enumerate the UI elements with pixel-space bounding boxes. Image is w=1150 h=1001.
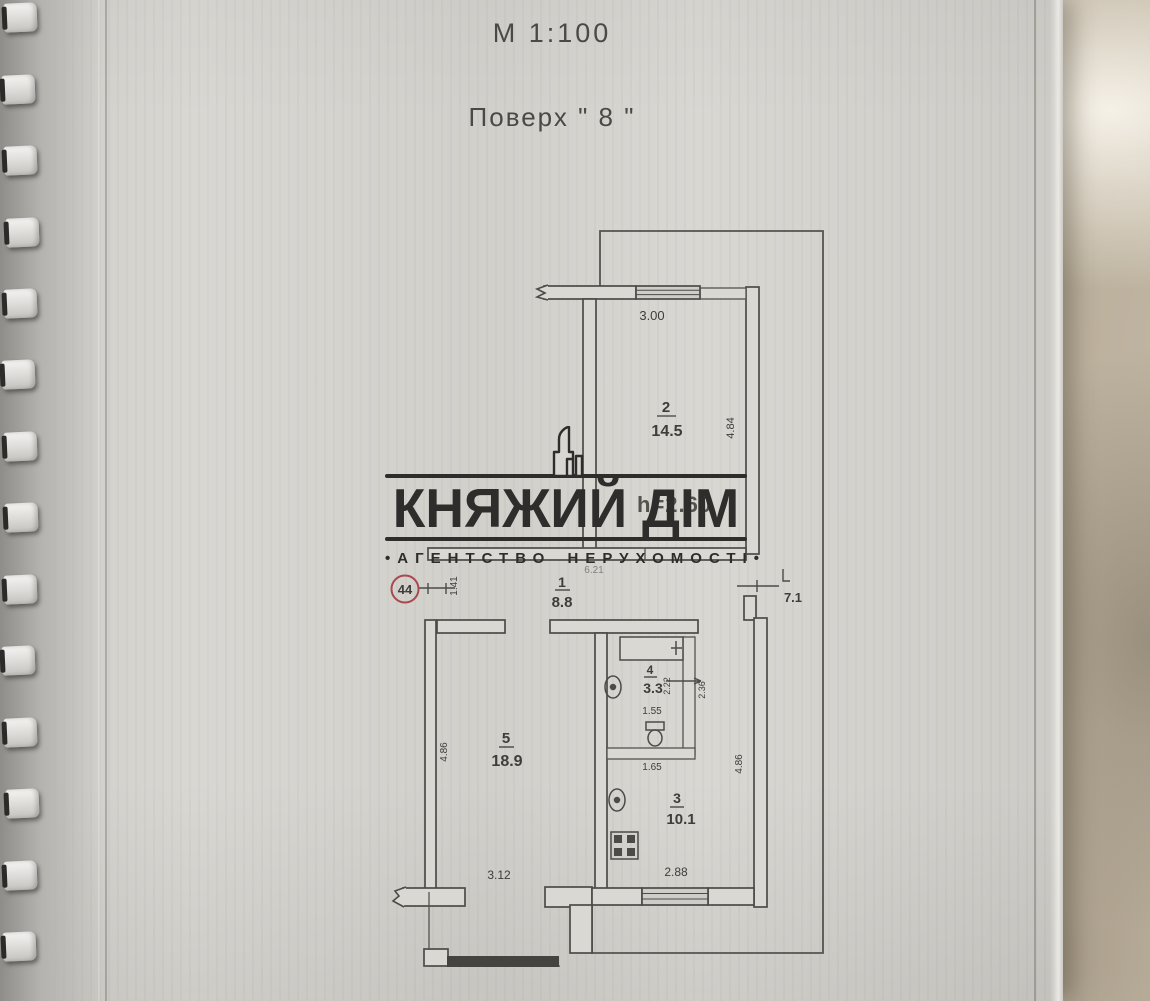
dim-kitchen-depth: 4.86 (734, 754, 745, 774)
page-right-edge (1050, 0, 1063, 1001)
room3-number: 3 (673, 790, 681, 806)
binding-comb-tooth (2, 931, 36, 961)
binding-comb-tooth (3, 431, 37, 461)
dim-niche-depth: 2.36 (697, 681, 707, 699)
kitchen-sink-drain-icon (615, 798, 620, 803)
toilet-tank-icon (646, 722, 664, 730)
wall-segment (403, 888, 465, 906)
room5-number: 5 (502, 730, 510, 747)
wall-segment (424, 949, 448, 966)
binding-comb-tooth (3, 574, 37, 604)
wall-segment (425, 620, 436, 892)
zigzag-break (393, 887, 406, 907)
watermark-title: КНЯЖИЙ ДІМ (390, 481, 741, 536)
dim-bath-len: 1.55 (642, 706, 662, 717)
dim-line-balcony (737, 580, 779, 592)
wall-segment (544, 286, 636, 299)
wall-segment (437, 620, 505, 633)
wall-segment (754, 618, 767, 907)
dim-bath-width: 2.22 (662, 677, 672, 695)
door-swing-mark (783, 569, 790, 581)
dim-room5-width: 3.12 (487, 868, 511, 882)
wall-segment (592, 888, 642, 905)
building-logo-icon (544, 426, 588, 476)
binding-comb-tooth (5, 788, 39, 818)
binding-comb-tooth (1, 645, 35, 675)
binding-comb-tooth (1, 359, 35, 389)
document-page: М 1:100 Поверх " 8 " (0, 0, 1063, 1001)
dim-kitchen-width: 2.88 (664, 865, 688, 879)
dim-room5-depth: 4.86 (439, 742, 450, 762)
window (642, 888, 708, 905)
room3-area: 10.1 (666, 811, 695, 828)
wall-segment (550, 620, 698, 633)
binding-comb-tooth (3, 145, 37, 175)
binding-comb-tooth (4, 502, 38, 532)
balcony-window-sill (447, 956, 559, 967)
room5-area: 18.9 (491, 753, 522, 770)
watermark-subtitle: •АГЕНТСТВО НЕРУХОМОСТІ• (385, 550, 747, 567)
wall-segment (570, 905, 592, 953)
wall-segment (708, 888, 754, 905)
agency-watermark: КНЯЖИЙ ДІМ •АГЕНТСТВО НЕРУХОМОСТІ• (385, 426, 747, 567)
binding-comb-tooth (3, 860, 37, 890)
wall-segment (746, 287, 759, 554)
binding-comb-tooth (3, 288, 37, 318)
wall-segment (744, 596, 756, 620)
balcony-area: 7.1 (784, 590, 802, 605)
wall-segment (545, 887, 592, 907)
room4-number: 4 (647, 663, 654, 677)
binding-comb-tooth (1, 74, 35, 104)
wall-segment (683, 637, 695, 755)
wall-segment (700, 288, 746, 299)
apartment-number-label: 44 (398, 582, 413, 597)
photo-scene: М 1:100 Поверх " 8 " (0, 0, 1150, 1001)
toilet-bowl-icon (648, 730, 662, 746)
watermark-bullet-left: • (385, 550, 397, 567)
dim-room2-width: 3.00 (639, 308, 664, 323)
walls (403, 286, 767, 966)
room2-number: 2 (662, 399, 670, 416)
wall-segment (595, 633, 607, 890)
watermark-bullet-right: • (754, 550, 766, 567)
window (636, 286, 700, 299)
binding-comb-tooth (3, 717, 37, 747)
stove-burners-icon (614, 835, 635, 856)
dim-entry-width: 1.41 (449, 576, 460, 596)
watermark-subtitle-text: АГЕНТСТВО НЕРУХОМОСТІ (397, 550, 753, 567)
binding-comb-tooth (5, 217, 39, 247)
wall-segment (607, 748, 695, 759)
room1-number: 1 (558, 574, 566, 590)
room4-area: 3.3 (643, 680, 663, 696)
zigzag-break (537, 285, 548, 300)
page-crease-line (105, 0, 107, 1001)
underlying-page-edge (1034, 0, 1036, 1001)
dim-bath-len2: 1.65 (642, 762, 662, 773)
room1-area: 8.8 (552, 594, 573, 611)
binding-comb-tooth (3, 2, 37, 32)
sink-drain-icon (611, 685, 616, 690)
